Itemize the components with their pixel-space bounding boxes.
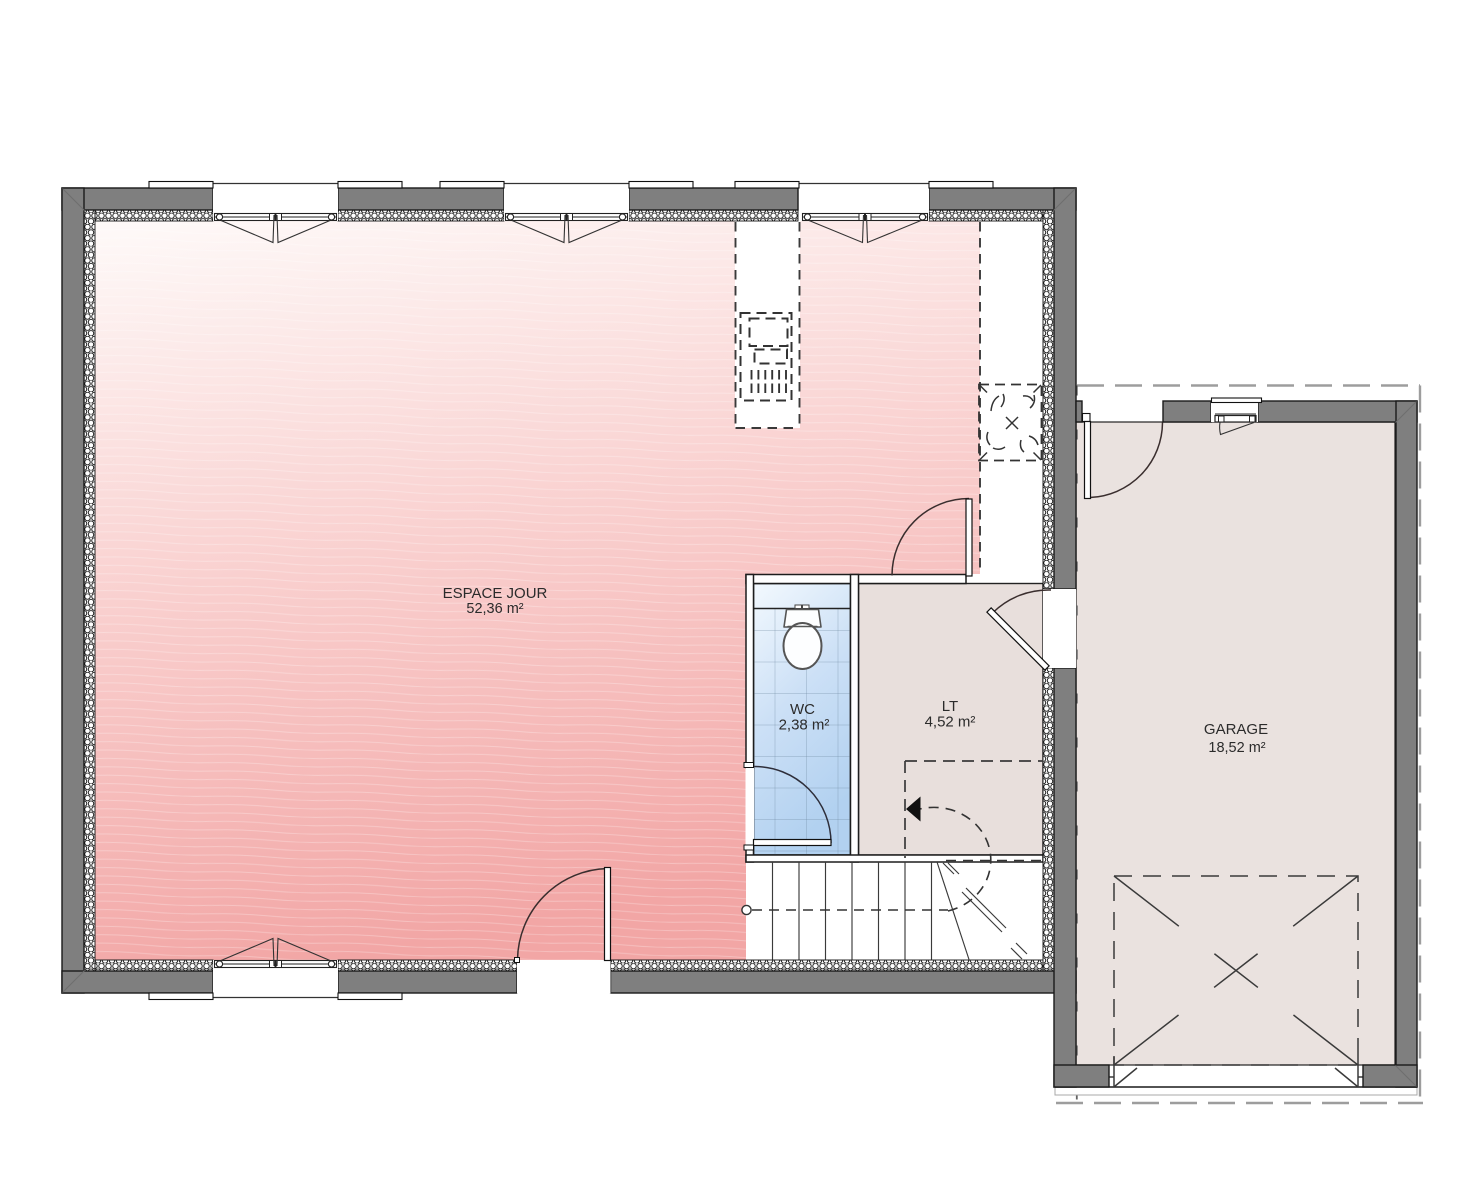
svg-text:52,36 m²: 52,36 m² (466, 601, 523, 617)
svg-text:18,52 m²: 18,52 m² (1208, 740, 1265, 756)
svg-text:ESPACE JOUR: ESPACE JOUR (443, 585, 548, 602)
svg-text:4,52 m²: 4,52 m² (925, 714, 976, 731)
svg-text:GARAGE: GARAGE (1204, 721, 1268, 738)
svg-text:WC: WC (790, 701, 815, 718)
svg-text:2,38 m²: 2,38 m² (779, 717, 830, 734)
svg-text:LT: LT (942, 698, 958, 715)
